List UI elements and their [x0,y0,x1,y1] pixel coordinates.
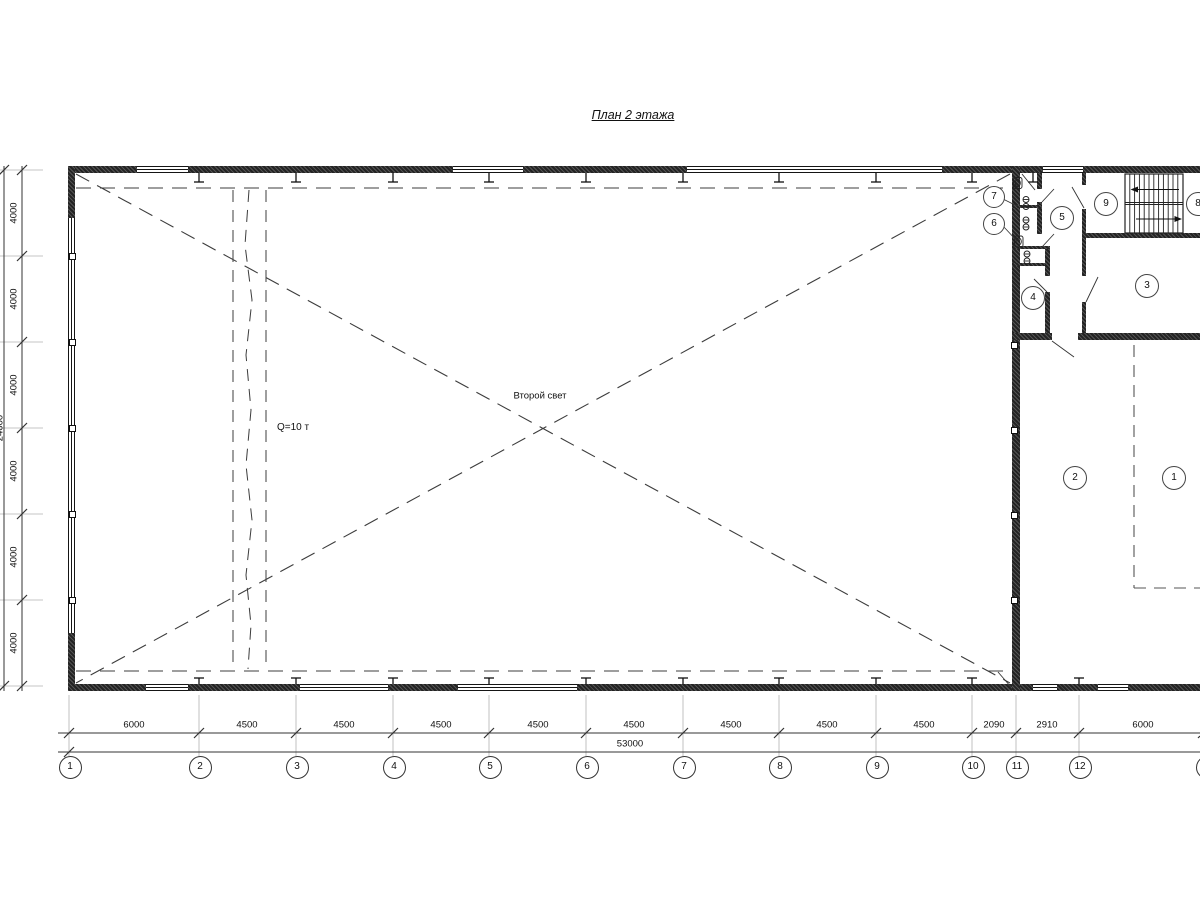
grid-axis-label: 10 [967,762,978,772]
dimension-label: 4500 [527,720,548,731]
dimension-label: 4000 [9,202,20,223]
dimension-label: 4000 [9,288,20,309]
grid-axis-label: 4 [391,762,397,772]
grid-axis-bubble: 5 [479,756,502,779]
dimension-label: 4000 [9,546,20,567]
room-number-label: 2 [1072,473,1078,483]
grid-axis-bubble: 9 [866,756,889,779]
room-number-1: 1 [1162,466,1186,490]
dimension-label: 4500 [913,720,934,731]
room-number-label: 3 [1144,281,1150,291]
grid-axis-label: 5 [487,762,493,772]
dimension-label: 2090 [983,720,1004,731]
dimension-total-label: 53000 [617,739,643,750]
grid-axis-label: 7 [681,762,687,772]
room1-dashed-boundary [1134,345,1200,588]
grid-axis-bubble: 1 [59,756,82,779]
grid-axis-bubble: 3 [286,756,309,779]
dimension-label: 4500 [816,720,837,731]
room-number-9: 9 [1094,192,1118,216]
grid-axis-label: 9 [874,762,880,772]
room-number-6: 6 [983,213,1005,235]
dimension-label: 4500 [623,720,644,731]
room-number-label: 5 [1059,213,1065,223]
grid-axis-label: 6 [584,762,590,772]
grid-axis-label: 11 [1012,762,1022,772]
door-swings [998,174,1098,687]
second-light-label: Второй свет [513,391,566,402]
dimension-label: 2910 [1036,720,1057,731]
wc-fixtures [1014,178,1031,265]
room-number-3: 3 [1135,274,1159,298]
grid-axis-label: 3 [294,762,300,772]
dimension-ticks [0,165,1200,757]
room-number-7: 7 [983,186,1005,208]
floor-plan: 1 2 3 4 5 6 7 8 9 10 11 12 6000 4500 450… [0,0,1200,900]
grid-axis-label: 12 [1074,762,1085,772]
second-light-outline [76,174,1010,683]
dimension-label: 4000 [9,632,20,653]
grid-axis-bubble: 11 [1006,756,1029,779]
toilet-icon [1016,238,1021,245]
dimension-lines [4,166,1200,752]
room-number-leaders [1003,199,1017,241]
crane-capacity-label: Q=10 т [277,422,309,433]
grid-axis-bubble: 8 [769,756,792,779]
room-number-5: 5 [1050,206,1074,230]
crane-runway-lines [233,190,266,669]
room-number-label: 4 [1030,293,1036,303]
grid-axis-bubble: 2 [189,756,212,779]
grid-axis-bubble: 12 [1069,756,1092,779]
grid-axis-bubble: 4 [383,756,406,779]
wall-column-markers [194,173,1084,684]
dimension-label: 6000 [1132,720,1153,731]
room-number-label: 6 [991,219,997,229]
room-number-label: 1 [1171,473,1177,483]
dimension-label: 4500 [236,720,257,731]
grid-axis-label: 8 [777,762,783,772]
grid-extension-lines [0,170,1079,756]
room-number-2: 2 [1063,466,1087,490]
room-number-label: 9 [1103,199,1109,209]
toilet-icon [1015,179,1020,186]
dimension-label: 4500 [720,720,741,731]
dimension-label: 4000 [9,460,20,481]
room-number-label: 7 [991,192,997,202]
grid-axis-bubble: 6 [576,756,599,779]
room-number-4: 4 [1021,286,1045,310]
staircase [1125,174,1183,233]
dimension-label: 4500 [333,720,354,731]
dimension-label: 4500 [430,720,451,731]
room-number-label: 8 [1195,199,1200,209]
grid-axis-bubble: 10 [962,756,985,779]
grid-axis-label: 1 [67,762,73,772]
drawing-title: План 2 этажа [592,108,675,122]
dimension-label: 6000 [123,720,144,731]
dimension-total-label: 24000 [0,415,6,441]
dimension-label: 4000 [9,374,20,395]
grid-axis-bubble: 7 [673,756,696,779]
grid-axis-label: 2 [197,762,203,772]
